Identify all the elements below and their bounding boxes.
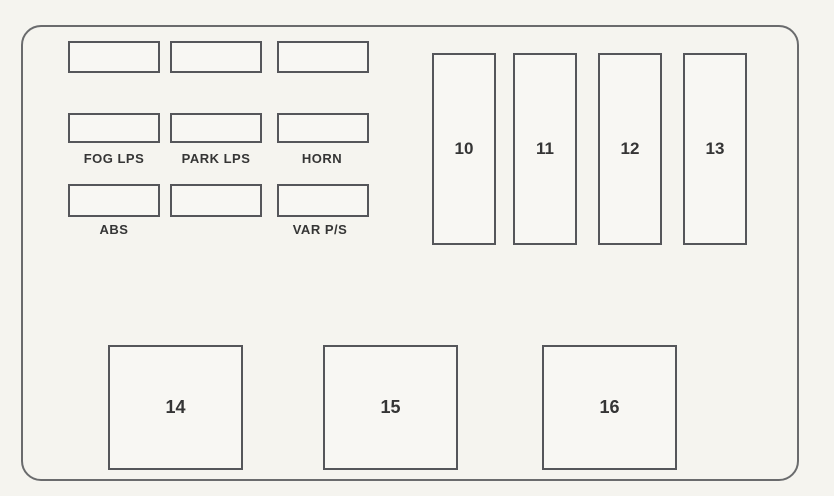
fuse-slot bbox=[277, 41, 369, 73]
fuse-slot-var-ps bbox=[277, 184, 369, 217]
fuse-block-number: 14 bbox=[165, 397, 185, 418]
relay-slot-11: 11 bbox=[513, 53, 577, 245]
fuse-slot-horn bbox=[277, 113, 369, 143]
relay-number: 13 bbox=[706, 139, 725, 159]
fuse-slot-abs bbox=[68, 184, 160, 217]
fuse-block-15: 15 bbox=[323, 345, 458, 470]
fuse-label-horn: HORN bbox=[257, 151, 387, 166]
fuse-slot bbox=[170, 41, 262, 73]
relay-number: 11 bbox=[536, 139, 554, 159]
fuse-slot-park-lps bbox=[170, 113, 262, 143]
relay-slot-10: 10 bbox=[432, 53, 496, 245]
fuse-block-14: 14 bbox=[108, 345, 243, 470]
fuse-block-number: 15 bbox=[380, 397, 400, 418]
relay-number: 10 bbox=[455, 139, 474, 159]
relay-number: 12 bbox=[621, 139, 640, 159]
fuse-label-abs: ABS bbox=[49, 222, 179, 237]
fuse-slot bbox=[170, 184, 262, 217]
relay-slot-12: 12 bbox=[598, 53, 662, 245]
fuse-block-16: 16 bbox=[542, 345, 677, 470]
fuse-block-number: 16 bbox=[599, 397, 619, 418]
fuse-slot-fog-lps bbox=[68, 113, 160, 143]
relay-slot-13: 13 bbox=[683, 53, 747, 245]
fuse-slot bbox=[68, 41, 160, 73]
fuse-box-diagram: FOG LPS PARK LPS HORN ABS VAR P/S 10 11 … bbox=[0, 0, 834, 496]
fuse-label-var-ps: VAR P/S bbox=[255, 222, 385, 237]
